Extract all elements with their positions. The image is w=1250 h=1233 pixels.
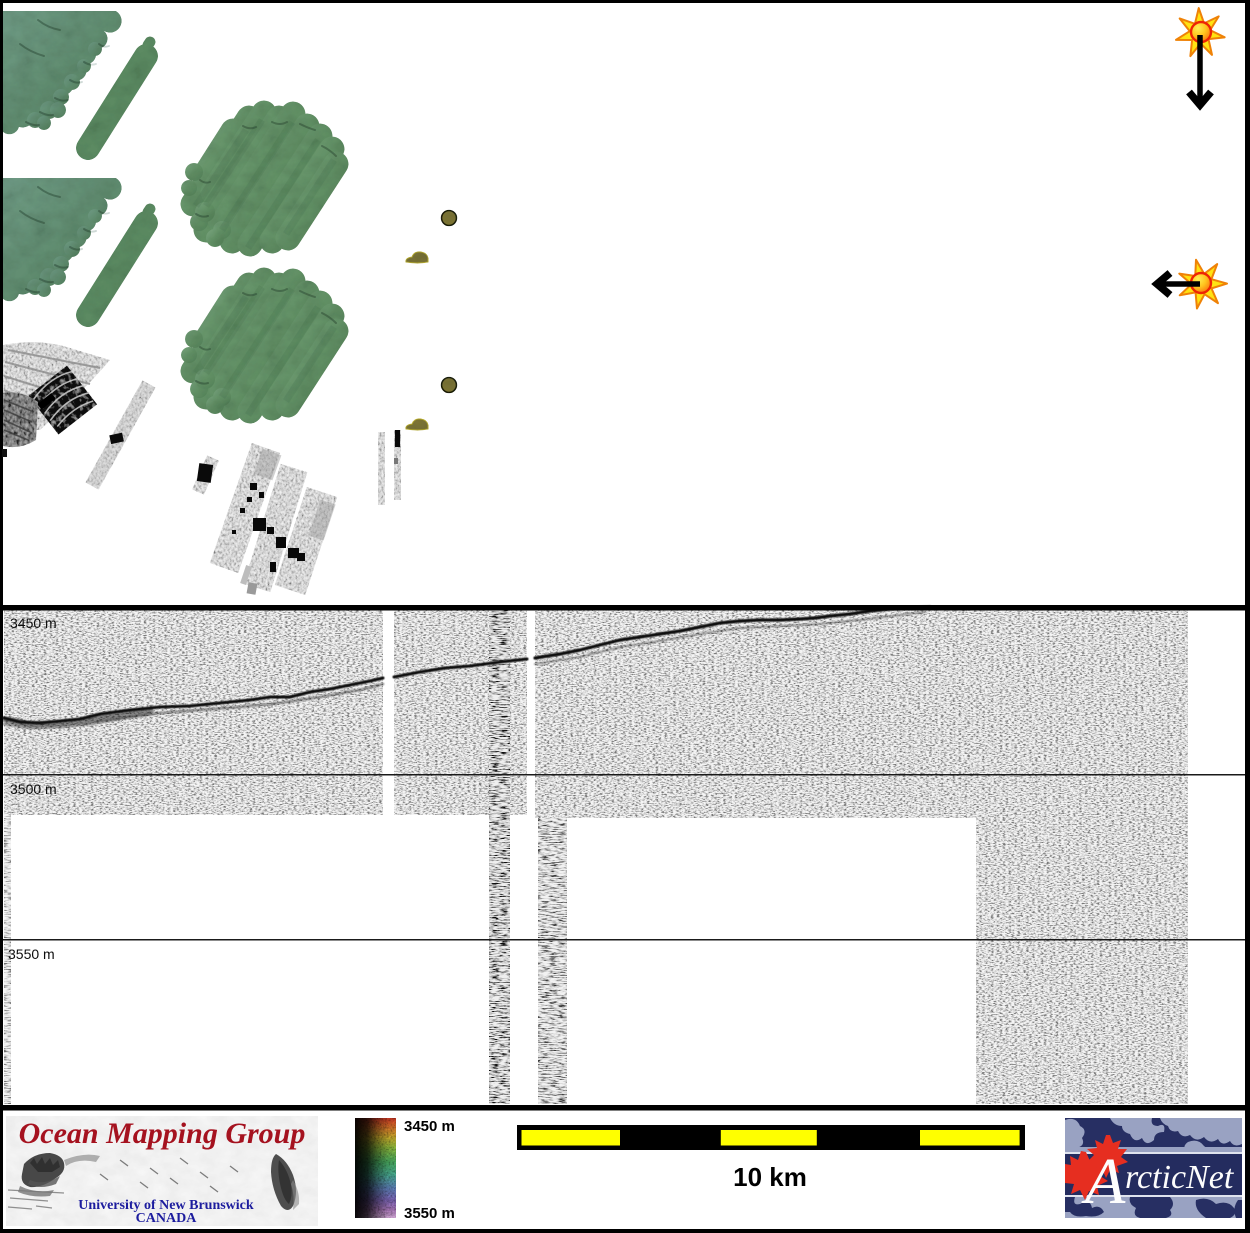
svg-text:3550 m: 3550 m [404, 1205, 455, 1222]
svg-text:A: A [1081, 1145, 1126, 1218]
svg-text:Ocean Mapping Group: Ocean Mapping Group [19, 1117, 306, 1150]
svg-text:3450 m: 3450 m [10, 615, 57, 631]
svg-text:3500 m: 3500 m [10, 781, 57, 797]
svg-text:3550 m: 3550 m [8, 946, 55, 962]
svg-text:10 km: 10 km [733, 1162, 807, 1192]
svg-text:CANADA: CANADA [136, 1211, 198, 1226]
svg-text:3450 m: 3450 m [404, 1118, 455, 1135]
svg-text:rcticNet: rcticNet [1125, 1159, 1235, 1196]
